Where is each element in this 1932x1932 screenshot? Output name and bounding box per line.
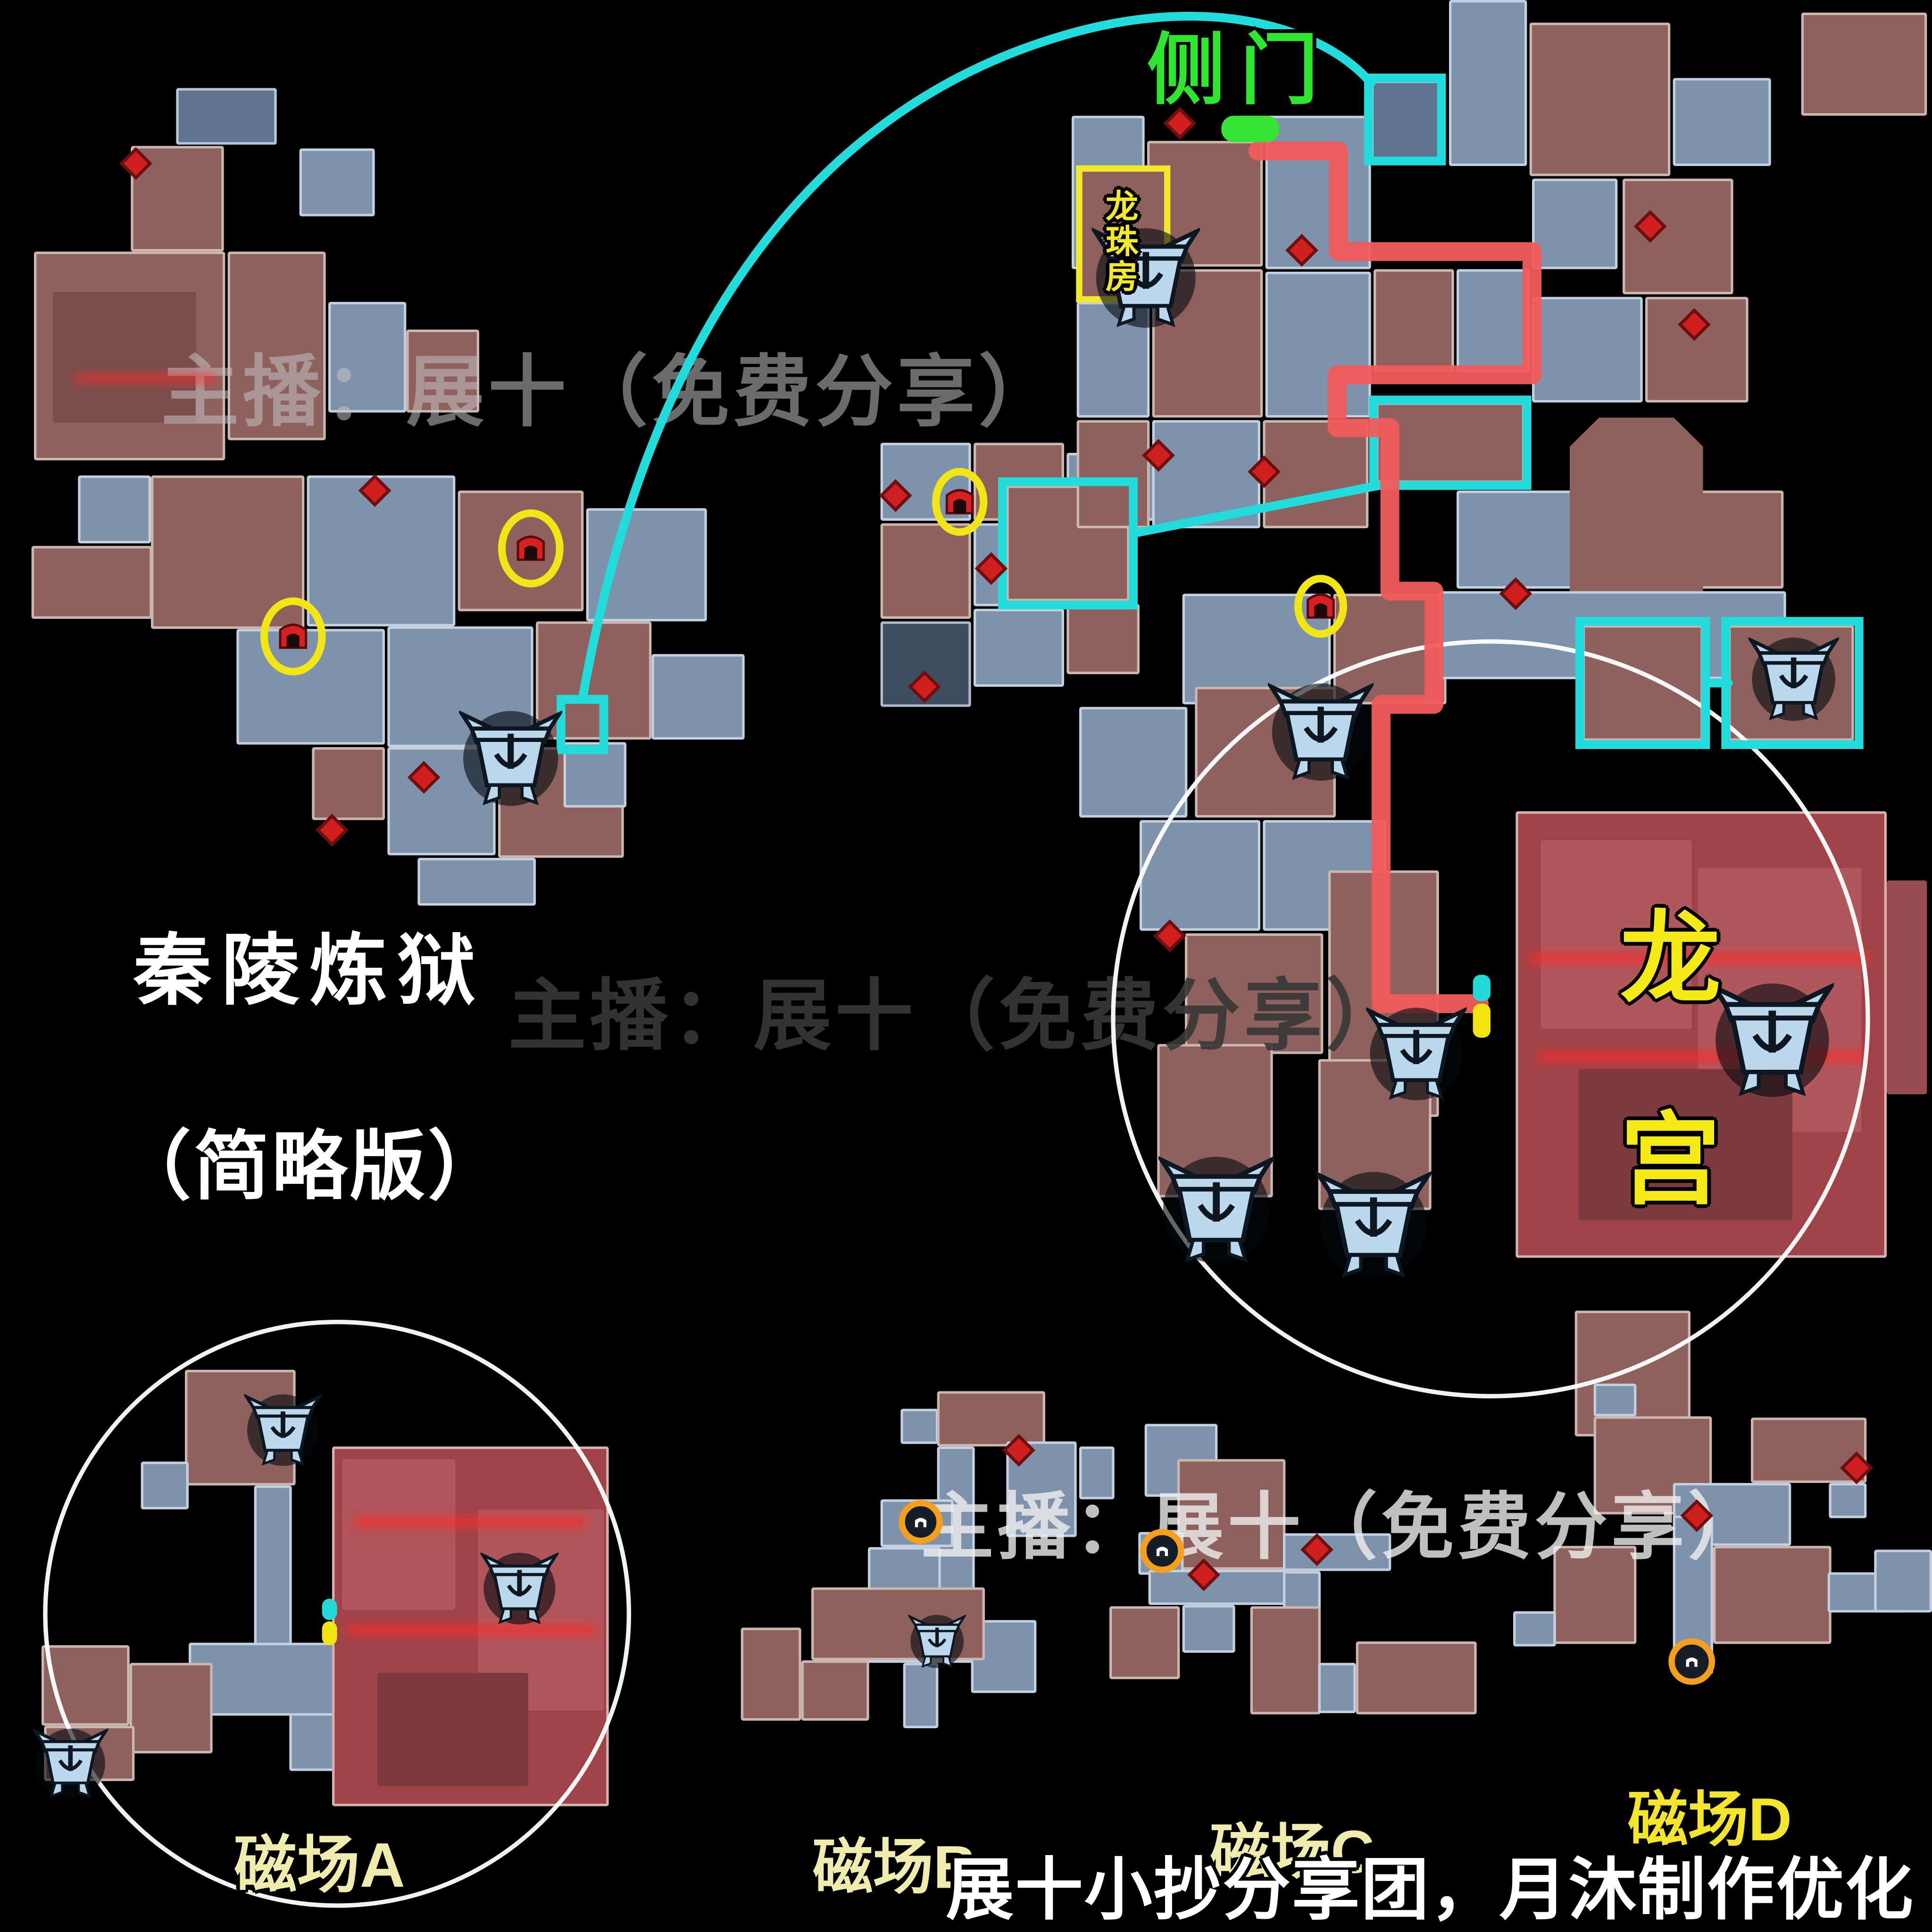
- screenshot-root: 主播：展十（免费分享） 主播：展十（免费分享） 主播：展十（免费分享）: [0, 0, 1932, 1932]
- red-glow: [355, 1517, 586, 1527]
- red-gate-item-icon: [280, 625, 306, 648]
- enemy-diamond-icon: [1682, 1501, 1711, 1530]
- enemy-diamond-icon: [409, 763, 438, 791]
- treasure-chest-icon: [483, 1553, 556, 1624]
- treasure-chest-icon: [910, 1615, 964, 1668]
- treasure-chest-icon: [246, 1394, 319, 1466]
- enemy-diamond-icon: [318, 816, 346, 844]
- dragon-palace-label-char2: 宫: [1617, 1079, 1723, 1225]
- treasure-chest-icon: [35, 1729, 106, 1798]
- cyan-tick-marker: [322, 1599, 337, 1620]
- map-title-line1: 秦陵炼狱: [133, 933, 486, 1011]
- enemy-diamond-icon: [122, 149, 150, 177]
- side-door-marker: [1221, 116, 1279, 142]
- enemy-diamond-icon: [1842, 1454, 1871, 1482]
- yellow-tick-marker: [1473, 1004, 1491, 1038]
- treasure-chest-icon: [462, 711, 559, 806]
- white-arch-item-icon: [915, 1517, 927, 1528]
- cyan-highlight-box: [1580, 621, 1706, 744]
- enemy-diamond-icon: [910, 673, 939, 701]
- enemy-diamond-icon: [1303, 1535, 1331, 1564]
- red-glow: [347, 1625, 596, 1635]
- field-d-label: 磁场D: [1628, 1791, 1792, 1851]
- red-gate-item-icon: [518, 537, 544, 560]
- map-title-line2: （简略版）: [116, 1130, 506, 1205]
- red-route-line: [1258, 151, 1532, 1004]
- enemy-diamond-icon: [881, 481, 909, 509]
- enemy-diamond-icon: [360, 476, 389, 505]
- enemy-diamond-icon: [1190, 1560, 1218, 1589]
- white-arch-item-icon: [1685, 1657, 1698, 1668]
- pearl-room-label-char3: 房: [1097, 251, 1147, 298]
- cyan-highlight-box: [561, 700, 604, 750]
- treasure-chest-icon: [1751, 638, 1836, 721]
- white-arch-item-icon: [1156, 1546, 1169, 1557]
- treasure-chest-icon: [1319, 1172, 1428, 1278]
- enemy-diamond-icon: [1250, 458, 1278, 486]
- map-canvas: 主播：展十（免费分享） 主播：展十（免费分享） 主播：展十（免费分享）: [0, 0, 1932, 1932]
- enemy-diamond-icon: [1144, 441, 1173, 469]
- cyan-pointer-line: [1133, 485, 1379, 533]
- cyan-highlight-box: [1002, 482, 1133, 605]
- dragon-palace-label-char1: 龙: [1617, 878, 1723, 1024]
- cyan-tick-marker: [1473, 975, 1491, 1001]
- treasure-chest-icon: [1271, 683, 1371, 781]
- enemy-diamond-icon: [1636, 212, 1664, 241]
- enemy-diamond-icon: [1680, 310, 1708, 339]
- red-gate-item-icon: [947, 490, 973, 513]
- enemy-diamond-icon: [1288, 236, 1316, 264]
- treasure-chest-icon: [1715, 983, 1831, 1097]
- red-gate-item-icon: [1308, 595, 1334, 618]
- cyan-highlight-box: [1368, 78, 1441, 161]
- treasure-chest-icon: [1369, 1008, 1464, 1100]
- treasure-chest-icon: [1162, 1157, 1271, 1263]
- enemy-diamond-icon: [1501, 579, 1530, 608]
- credit-text: 展十小抄分享团，月沐制作优化: [946, 1857, 1914, 1924]
- side-door-label: 侧门: [1147, 33, 1333, 110]
- red-glow: [75, 375, 217, 383]
- enemy-diamond-icon: [1005, 1436, 1033, 1464]
- yellow-tick-marker: [322, 1621, 337, 1645]
- field-a-label: 磁场A: [234, 1834, 405, 1897]
- enemy-diamond-icon: [1156, 922, 1184, 950]
